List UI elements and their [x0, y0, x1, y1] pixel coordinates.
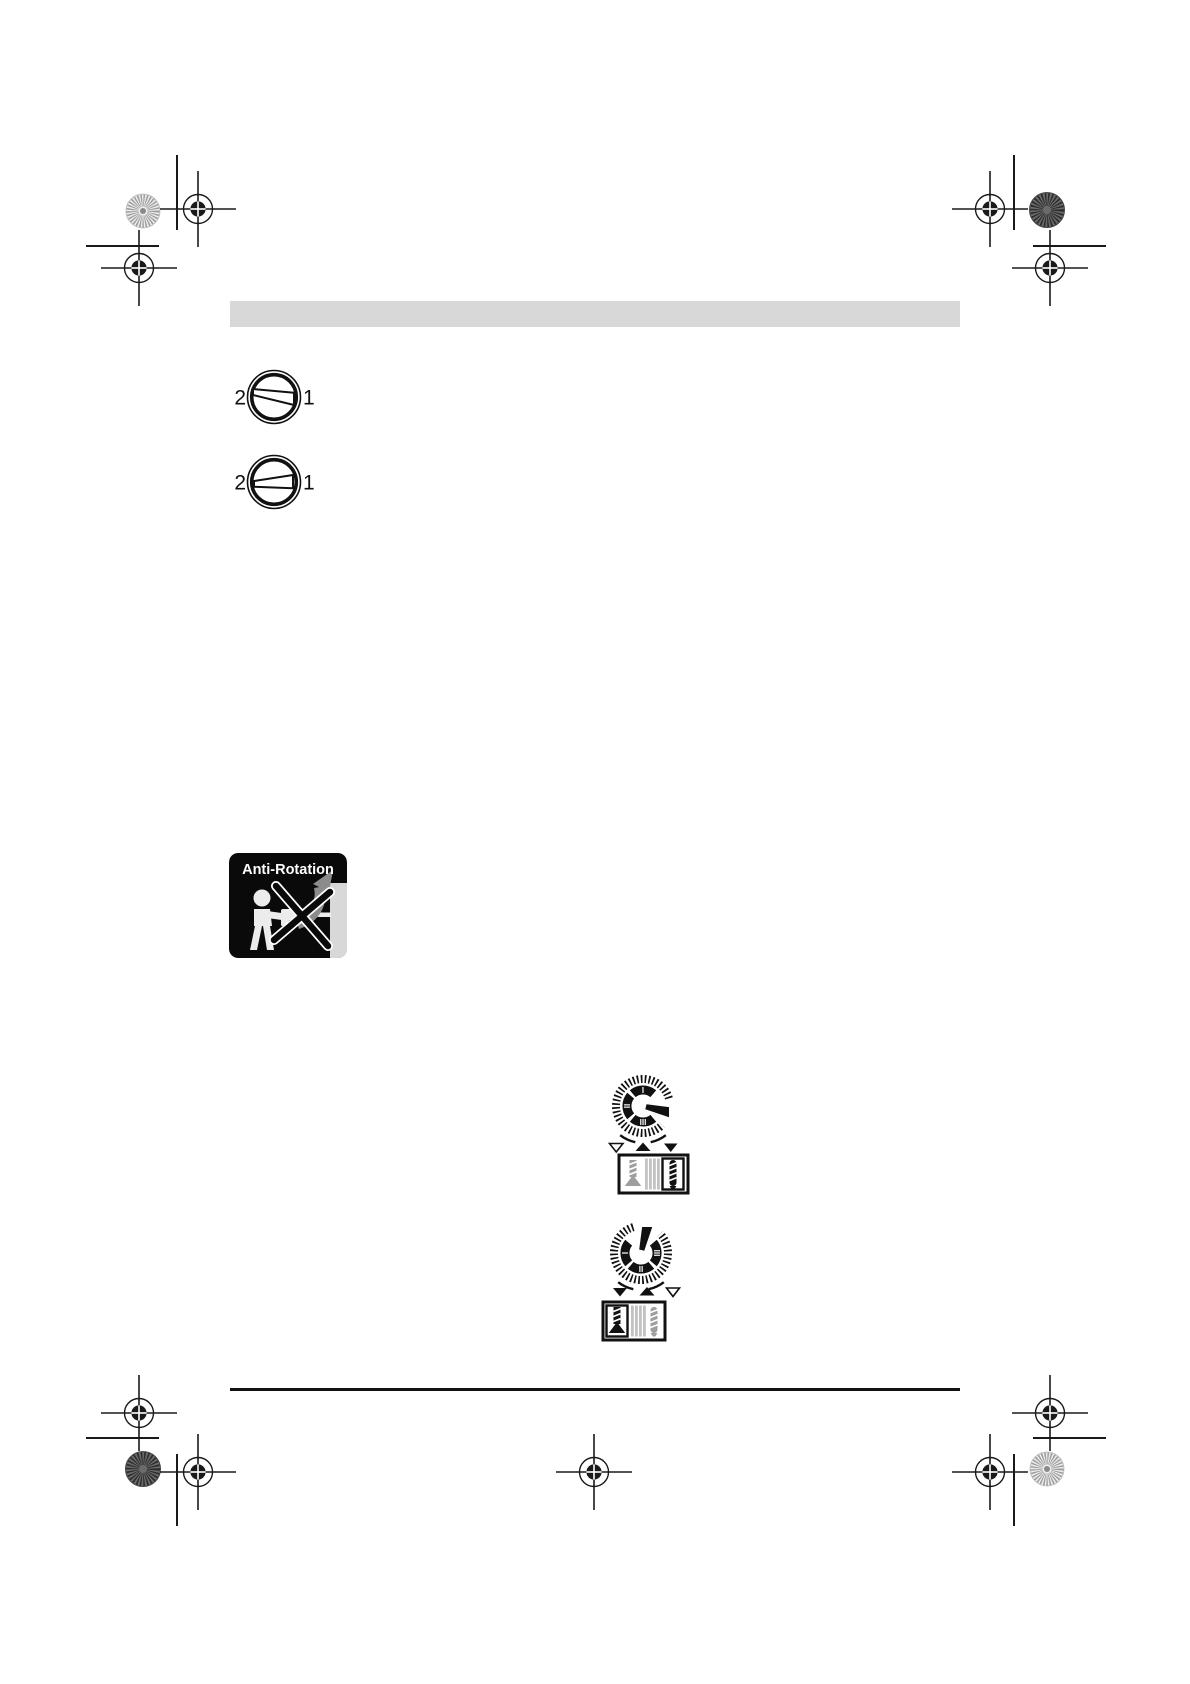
- content-divider-rule: [230, 1388, 960, 1391]
- index-triangle-left-outline: [610, 1144, 624, 1153]
- gear-selector-icon-position-2: 2 1: [215, 447, 335, 519]
- dial-numeral-i: I: [642, 1086, 644, 1095]
- index-triangle-right-filled: [664, 1144, 678, 1153]
- worker-head: [254, 890, 271, 907]
- section-header-bar: [230, 301, 960, 327]
- gear-label-2: 2: [234, 387, 246, 410]
- dial-numeral-ii: II: [623, 1104, 632, 1108]
- application-pictogram: [603, 1302, 665, 1340]
- gear-selector-icon-position-1: 2 1: [215, 362, 335, 434]
- dial-numeral-i: I: [621, 1252, 630, 1254]
- dial-numeral-iii: III: [640, 1117, 647, 1126]
- index-triangle-center: [636, 1143, 651, 1152]
- rotation-arc-right: [649, 1282, 664, 1289]
- application-pictogram: [619, 1155, 688, 1193]
- gear-label-2: 2: [234, 472, 246, 495]
- registration-crosshair-bottom-right-2: [950, 1432, 1030, 1512]
- anti-rotation-badge: Anti-Rotation: [229, 853, 347, 958]
- registration-crosshair-top-left-2: [99, 228, 179, 308]
- mode-dial-knob: I II III: [616, 1079, 678, 1133]
- gear-label-1: 1: [303, 387, 315, 410]
- registration-crosshair-bottom-left-2: [158, 1432, 238, 1512]
- rotation-arc-right: [651, 1135, 666, 1142]
- index-triangle-right-outline: [667, 1288, 680, 1297]
- gear-label-1: 1: [303, 472, 315, 495]
- mode-dial-illustration-1: I II III: [590, 1068, 702, 1198]
- manual-page: 2 1 2 1: [0, 0, 1190, 1684]
- index-triangle-left-filled: [613, 1288, 627, 1297]
- anti-rotation-label: Anti-Rotation: [242, 862, 334, 878]
- mode-dial-illustration-2: I II III: [588, 1215, 700, 1345]
- dial-numeral-ii: II: [639, 1264, 643, 1273]
- registration-crosshair-top-right-2: [1010, 228, 1090, 308]
- registration-crosshair-bottom-center: [554, 1432, 634, 1512]
- mode-dial-knob: I II III: [614, 1218, 668, 1280]
- rotation-arc-left: [620, 1135, 635, 1142]
- dial-numeral-iii: III: [652, 1250, 661, 1257]
